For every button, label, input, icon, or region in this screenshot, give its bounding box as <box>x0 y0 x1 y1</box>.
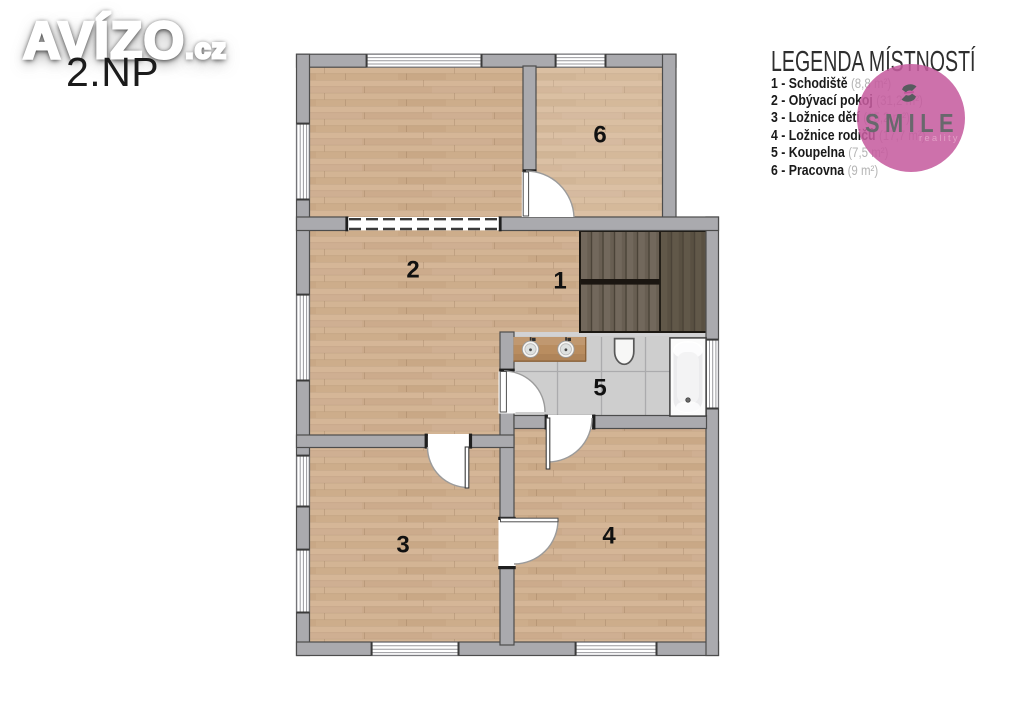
svg-text:1: 1 <box>553 268 566 295</box>
svg-text:5: 5 <box>593 375 606 402</box>
svg-text:3: 3 <box>396 532 409 559</box>
svg-text:2: 2 <box>406 257 419 284</box>
svg-text:6: 6 <box>593 122 606 149</box>
svg-text:4: 4 <box>602 523 616 550</box>
